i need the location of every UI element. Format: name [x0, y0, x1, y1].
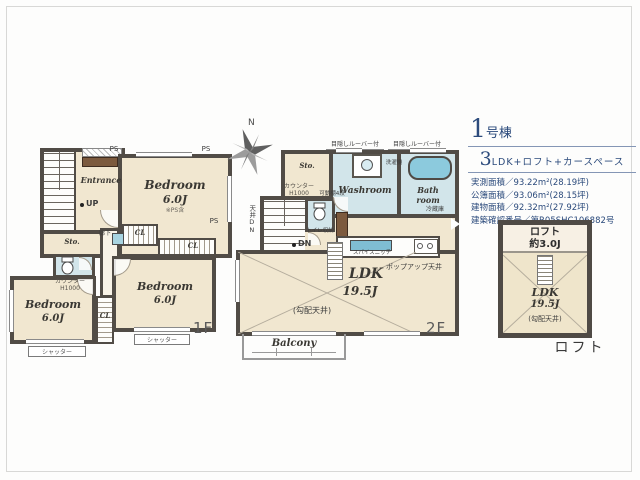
loft-name: ロフト: [503, 227, 587, 239]
ldk-size: 19.5J: [334, 284, 386, 298]
up-label: UP: [86, 199, 108, 209]
loft-caption: ロフト: [540, 340, 620, 357]
spec-line-2: 公簿面積／93.06m²(28.15坪): [471, 190, 637, 203]
layout-text: LDK+ロフト+カースペース: [492, 157, 625, 168]
stair-divider-2f: [284, 200, 285, 226]
layout-line: 3LDK+ロフト+カースペース: [468, 148, 636, 170]
compass-n-label: N: [248, 118, 255, 128]
spec-line-3: 建物面積／92.32m²(27.92坪): [471, 202, 637, 215]
rule-bottom: [468, 172, 636, 173]
stove-burner-2: [427, 243, 433, 249]
window-bedtop-top: [136, 152, 192, 157]
window-washroom-top: [336, 148, 362, 153]
toilet-icon-1f: [60, 256, 75, 276]
floorplan-sheet: Entrance Bedroom 6.0J ※PS含 Sto. 廊下 UP カウ…: [0, 0, 640, 480]
bedroom-left-size: 6.0J: [16, 313, 90, 325]
kitchen-cabinet: [336, 212, 348, 238]
hallway-label: 廊下: [97, 230, 113, 237]
layout-prefix: 3: [480, 148, 492, 170]
bedroom-top-note: ※PS含: [128, 207, 222, 214]
bedroom-left-name: Bedroom: [16, 298, 90, 311]
entrance-sill: [82, 157, 118, 167]
staircase-1f: [44, 152, 76, 230]
storage-2f-label: Sto.: [285, 162, 329, 170]
window-bath-top: [410, 148, 446, 153]
shutter-box-2: シャッター: [134, 334, 190, 345]
bedroom-top-size: 6.0J: [128, 193, 222, 206]
bedroom-mid-name: Bedroom: [120, 280, 210, 293]
loft-sloped-label: (勾配天井): [510, 315, 580, 323]
ps-label-3: PS: [206, 217, 222, 225]
building-number: 1: [470, 114, 486, 143]
entrance-label: Entrance: [78, 176, 124, 186]
washer-label: 洗濯機: [383, 160, 405, 167]
floor1-caption: 1F: [193, 319, 213, 337]
spec-line-1: 実測面積／93.22m²(28.19坪): [471, 177, 637, 190]
loft-ldk-name: LDK: [518, 286, 572, 299]
window-ldk-bottom: [364, 331, 420, 336]
sloped-ceiling-label: (勾配天井): [282, 306, 342, 316]
closet-label-c: CL: [96, 312, 114, 320]
compass-icon: N: [224, 116, 276, 178]
washer-drum-icon: [361, 159, 373, 171]
window-bedleft-left: [9, 290, 14, 332]
loft-ladder: [537, 255, 553, 285]
ps-label-2: PS: [198, 145, 214, 153]
building-suffix: 号棟: [486, 126, 512, 141]
balcony-rail-line: [252, 352, 336, 353]
stove-burner-1: [417, 243, 423, 249]
floor2-caption: 2F: [426, 319, 446, 337]
bathroom-label: Bath room: [404, 186, 452, 205]
rule-top: [468, 146, 636, 147]
dn-label: DN: [298, 239, 320, 249]
closet-label-a: CL: [123, 229, 157, 237]
shutter-box-1: シャッター: [28, 346, 86, 357]
bedroom-mid-size: 6.0J: [120, 295, 210, 307]
up-dot: [80, 203, 84, 207]
ldk-name: LDK: [340, 266, 392, 283]
window-ldk-left: [235, 260, 240, 302]
fridge-label: 冷蔵庫: [420, 206, 450, 213]
window-bedleft-bottom: [26, 339, 84, 344]
loft-size: 約3.0J: [503, 239, 587, 251]
movable-shelf-label: 可動棚4段: [314, 191, 350, 198]
closet-label-b: CL: [176, 242, 210, 250]
ceiling-dn-label: 天井DN: [247, 197, 255, 241]
spice-niche-label: スパイスニッチ: [348, 250, 396, 257]
toilet-storage-label: トイレ収納: [303, 228, 337, 235]
ps-label-1: PS: [106, 145, 122, 153]
storage-1f-label: Sto.: [44, 238, 100, 246]
bathtub-icon: [408, 156, 452, 180]
bedroom-top-name: Bedroom: [128, 178, 222, 192]
dn-dot: [292, 243, 296, 247]
loft-ldk-size: 19.5J: [518, 299, 572, 311]
stair-divider: [59, 152, 60, 190]
counter-label-1f: カウンター H1000: [44, 278, 96, 292]
toilet-icon-2f: [312, 202, 327, 222]
window-bedtop-right: [227, 176, 232, 222]
balcony-label: Balcony: [252, 338, 336, 350]
building-title: 1号棟: [470, 114, 636, 143]
door-marker-right: [451, 218, 460, 230]
window-bedmid-bottom: [134, 327, 190, 332]
